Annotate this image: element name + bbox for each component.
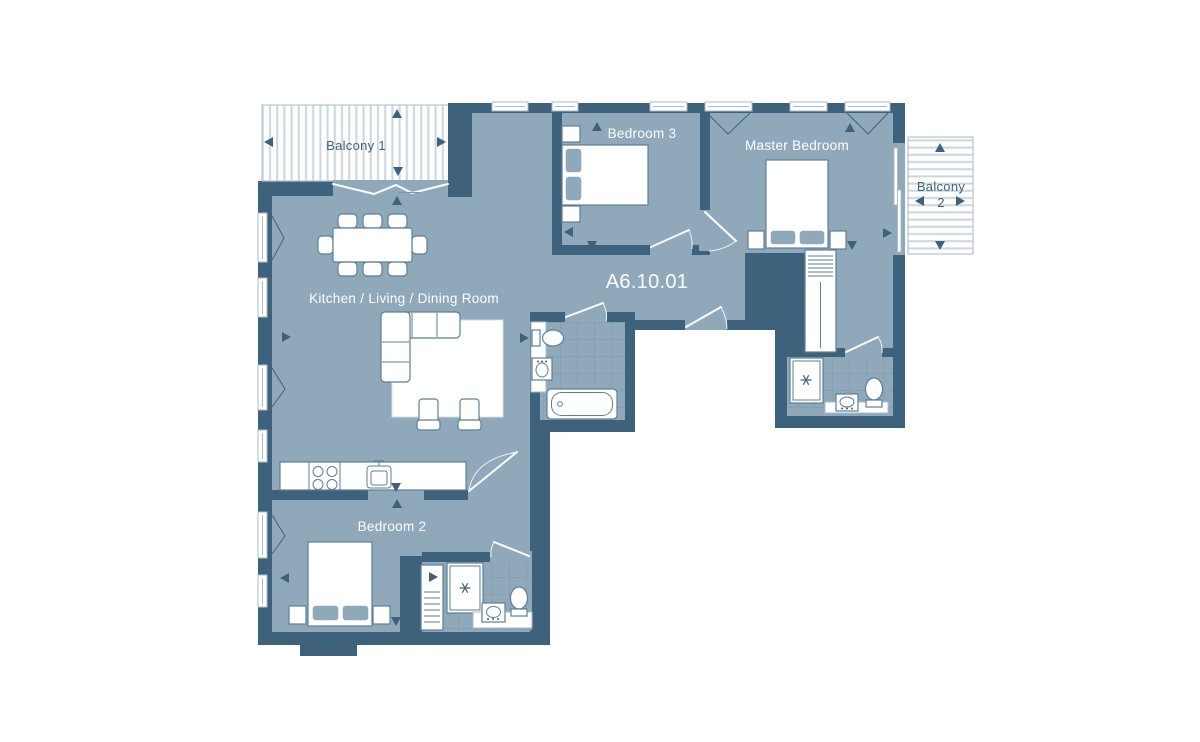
window xyxy=(258,430,267,462)
armchair xyxy=(458,399,481,430)
balcony2-label-line1: Balcony xyxy=(917,179,966,194)
dining-chair xyxy=(412,236,427,254)
floor-plan-page: Balcony 1 Balcony 2 Bedroom 3 Master Bed… xyxy=(0,0,1200,742)
window xyxy=(492,102,528,111)
living-area xyxy=(381,312,503,430)
window xyxy=(258,213,267,262)
sink-icon xyxy=(482,603,505,622)
window xyxy=(258,365,267,410)
window xyxy=(650,102,687,111)
dining-table xyxy=(333,228,412,262)
window xyxy=(705,102,752,111)
bedroom3-label: Bedroom 3 xyxy=(608,126,677,141)
toilet-icon xyxy=(511,587,528,616)
shower-icon xyxy=(790,358,823,403)
ensuite-master xyxy=(787,357,893,413)
armchair xyxy=(417,399,440,430)
floor-plan-drawing: Balcony 1 Balcony 2 Bedroom 3 Master Bed… xyxy=(0,0,1200,742)
window xyxy=(845,102,890,111)
window xyxy=(790,102,827,111)
sink-icon xyxy=(532,358,552,380)
bedroom2-label: Bedroom 2 xyxy=(358,519,427,534)
toilet-icon xyxy=(532,330,564,346)
master-bedroom-label: Master Bedroom xyxy=(745,138,849,153)
dining-chair xyxy=(338,214,357,228)
shower-icon xyxy=(447,563,483,613)
window xyxy=(258,278,267,317)
window xyxy=(258,575,267,607)
window xyxy=(258,512,267,558)
kitchen-living-dining-label: Kitchen / Living / Dining Room xyxy=(309,291,499,306)
balcony2-label-line2: 2 xyxy=(937,195,945,210)
dining-chair xyxy=(388,262,407,276)
dining-chair xyxy=(363,214,382,228)
window xyxy=(552,102,578,111)
kitchen-counter xyxy=(280,461,466,490)
bathtub-icon xyxy=(547,389,617,419)
dining-chair xyxy=(388,214,407,228)
sink-icon xyxy=(836,394,858,411)
toilet-icon xyxy=(866,378,883,407)
dining-chair xyxy=(338,262,357,276)
dining-chair xyxy=(363,262,382,276)
wardrobe-master xyxy=(805,250,836,352)
balcony1-label: Balcony 1 xyxy=(326,138,386,153)
bathroom-main xyxy=(531,322,625,420)
dining-chair xyxy=(318,236,333,254)
unit-number-label: A6.10.01 xyxy=(606,271,688,293)
ensuite-bedroom2 xyxy=(443,562,532,630)
